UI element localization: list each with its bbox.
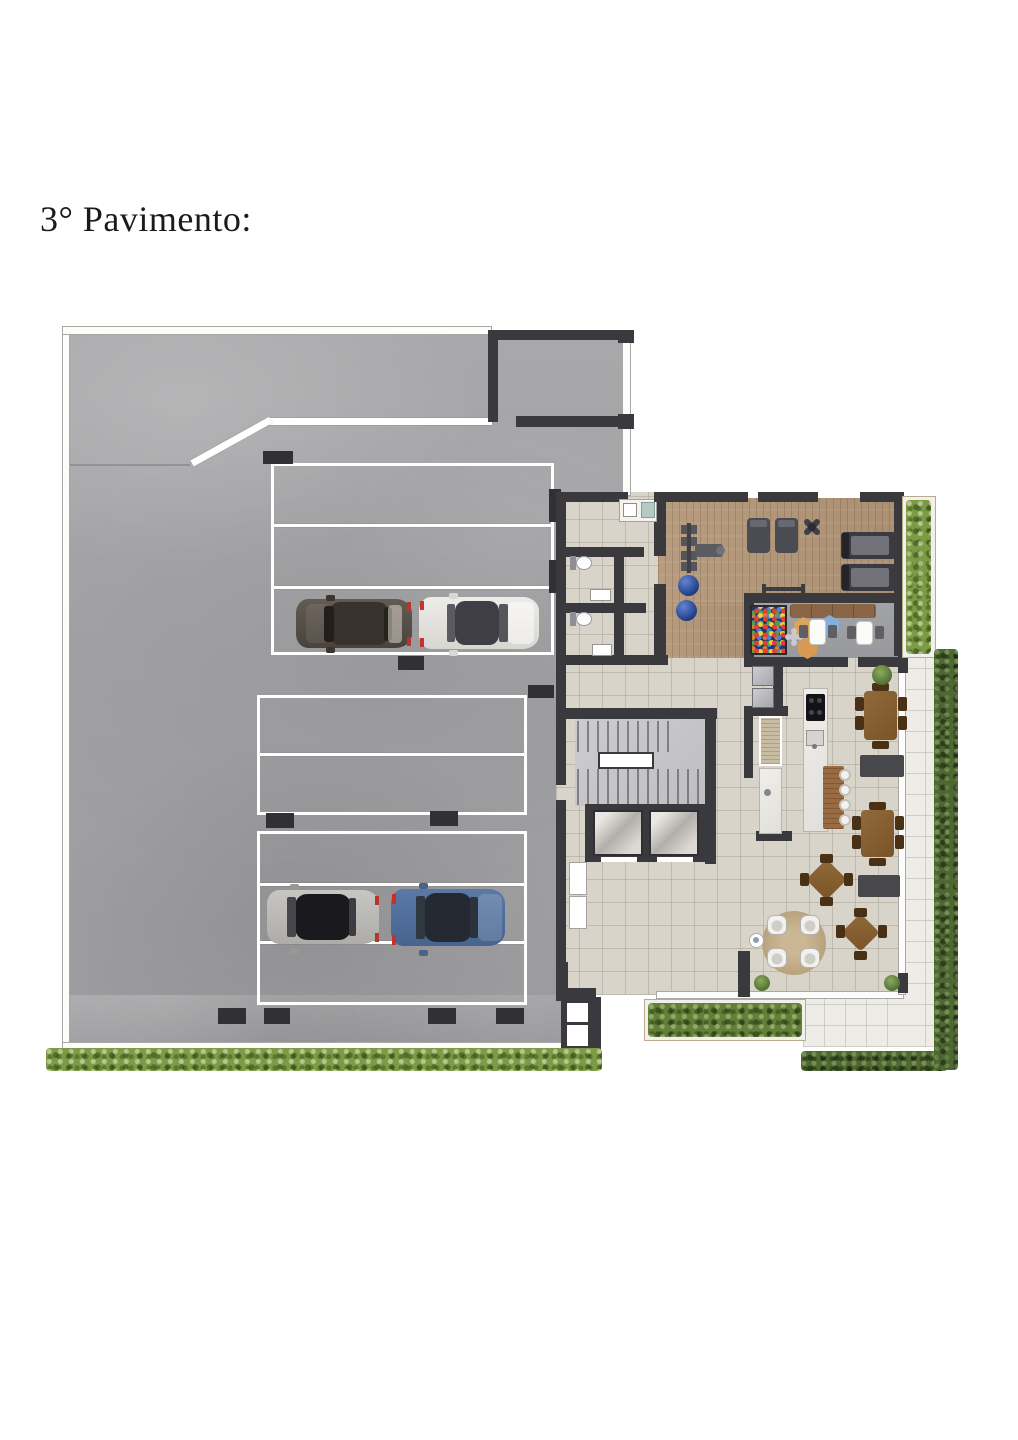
gym-ball <box>676 600 697 621</box>
car-blue-windshield <box>416 896 425 939</box>
elevator-door <box>657 857 693 862</box>
ballet-bar-cap <box>762 584 766 594</box>
island-faucet <box>812 744 817 749</box>
outer-wall-left <box>62 326 70 1049</box>
dining-chair <box>855 697 864 711</box>
hedge-top <box>906 500 931 654</box>
dining-chair <box>869 802 886 810</box>
service-door <box>569 862 587 895</box>
pillar <box>263 451 293 464</box>
car-silver-roof <box>295 894 351 940</box>
treadmill-console <box>842 565 849 590</box>
outer-wall-right-upper <box>622 330 631 496</box>
counter-faucet <box>764 789 771 796</box>
dining-chair <box>844 873 853 886</box>
pillar <box>496 1008 524 1024</box>
dining-chair <box>895 816 904 830</box>
car-suv-trim <box>388 605 402 643</box>
armchair <box>767 915 787 935</box>
parking-divider-c1 <box>260 883 524 886</box>
kids-chair <box>799 625 808 638</box>
dining-chair <box>836 925 845 938</box>
burner <box>817 710 822 715</box>
gym-wall-top-2 <box>758 492 818 502</box>
kids-table <box>809 619 826 645</box>
shrub <box>884 975 900 991</box>
terrace-bottom <box>803 995 906 1047</box>
car-white-taillight <box>420 601 424 610</box>
car-white-mirror <box>449 593 458 599</box>
bar-stool <box>839 814 851 826</box>
car-white-rear-glass <box>447 604 455 642</box>
dining-chair <box>878 925 887 938</box>
kids-chair <box>875 626 884 639</box>
bath-wall-1 <box>566 547 644 557</box>
treadmill-console <box>842 533 849 558</box>
weight-plate <box>691 562 697 571</box>
hedge-bottom-left <box>648 1003 802 1037</box>
dining-chair <box>898 716 907 730</box>
exit-opening <box>567 1025 588 1046</box>
dining-table <box>864 691 897 740</box>
cabinet <box>752 688 774 708</box>
core-wall-left-lower <box>556 800 566 962</box>
kids-chair <box>847 626 856 639</box>
buffet <box>860 755 904 777</box>
car-blue-mirror <box>419 883 428 889</box>
car-white-mirror <box>449 650 458 656</box>
mat-pad <box>750 520 767 527</box>
ballet-bar <box>763 587 805 591</box>
gym-wall-top-1 <box>654 492 748 502</box>
dining-chair <box>872 741 889 749</box>
car-silver-windshield <box>287 897 296 937</box>
car-silver-taillight <box>375 896 379 905</box>
dining-chair <box>852 835 861 849</box>
dining-table <box>861 810 894 857</box>
car-suv-taillight <box>407 637 411 646</box>
ball-pit <box>750 605 787 655</box>
bath-sink <box>592 644 612 656</box>
burner <box>809 698 814 703</box>
weight-plate <box>681 525 687 534</box>
kids-table <box>856 621 873 645</box>
play-sofa <box>790 604 876 618</box>
ramp-room-wall-top <box>488 330 628 340</box>
flower-rug <box>790 633 798 641</box>
weight-plate <box>681 562 687 571</box>
car-blue-taillight <box>392 935 396 945</box>
dining-chair <box>820 897 833 906</box>
decanter <box>753 937 759 943</box>
bar-stool <box>839 769 851 781</box>
hedge-garage-bottom <box>46 1048 602 1071</box>
support-sink <box>623 503 637 517</box>
sideboard <box>759 716 782 766</box>
pillar <box>398 656 424 670</box>
car-suv-windshield <box>324 606 334 642</box>
ramp-room-wall-left <box>488 330 498 422</box>
service-door <box>569 896 587 929</box>
ramp-room-corner-a <box>618 330 634 343</box>
gym-ball <box>678 575 699 596</box>
hedge-terrace-right <box>934 649 958 1070</box>
stair-treads-upper <box>577 721 677 752</box>
car-suv-mirror <box>326 595 335 601</box>
car-silver-mirror <box>290 948 299 954</box>
shrub <box>754 975 770 991</box>
bath-partition-1 <box>614 557 624 605</box>
car-suv-taillight <box>407 602 411 611</box>
elevator-cab <box>593 810 643 856</box>
core-wall-top <box>556 492 628 502</box>
parking-divider-a1 <box>274 524 551 527</box>
car-blue-mirror <box>419 950 428 956</box>
burner <box>817 698 822 703</box>
toilet-bowl <box>576 612 592 626</box>
kids-chair <box>828 625 837 638</box>
car-silver-rear-glass <box>349 898 356 936</box>
parking-divider-b1 <box>260 753 524 756</box>
potted-plant <box>872 665 892 685</box>
bar-stool <box>839 784 851 796</box>
pillar <box>528 685 554 698</box>
dining-chair <box>852 816 861 830</box>
bath-wall-2 <box>566 603 646 613</box>
stair-wall-top <box>565 708 717 719</box>
corridor-wall-stub <box>738 951 750 997</box>
car-suv-roof <box>330 602 388 645</box>
armchair <box>800 948 820 968</box>
car-blue-hood <box>478 894 502 941</box>
burner <box>809 710 814 715</box>
elevator-door <box>601 857 637 862</box>
car-suv-mirror <box>326 647 335 653</box>
lounge-wall-bottom <box>656 991 904 999</box>
gym-wall-left-lower <box>654 584 666 664</box>
dining-chair <box>854 908 867 917</box>
car-white-roof <box>455 601 499 645</box>
car-white-hood <box>508 602 534 644</box>
ballet-bar-cap <box>801 584 805 594</box>
buffet <box>858 875 900 897</box>
bench-pad <box>716 546 725 555</box>
weight-plate <box>681 537 687 546</box>
stair-landing <box>598 752 654 769</box>
floor-plan <box>0 0 1018 1440</box>
bar-stool <box>839 799 851 811</box>
dining-chair <box>869 858 886 866</box>
hedge-terrace-bottom <box>801 1051 948 1071</box>
treadmill-deck <box>851 568 889 587</box>
gym-kids-wall <box>748 593 904 603</box>
dining-chair <box>898 697 907 711</box>
ramp-room-wall-bottom <box>516 416 628 427</box>
car-blue-rear-glass <box>470 897 478 938</box>
dining-chair <box>854 951 867 960</box>
dining-chair <box>820 854 833 863</box>
parking-divider-a2 <box>274 586 551 589</box>
elevator-cab <box>649 810 699 856</box>
wet-counter <box>759 768 782 834</box>
ramp-line-horizontal <box>268 418 492 425</box>
ramp-room-corner-b <box>618 414 634 429</box>
dining-chair <box>855 716 864 730</box>
stair-treads-lower <box>577 769 705 805</box>
car-blue-roof <box>424 893 472 942</box>
car-silver-mirror <box>290 884 299 890</box>
pillar <box>430 811 458 826</box>
core-wall-left-upper <box>556 492 566 667</box>
exit-opening <box>567 1003 588 1022</box>
armchair <box>800 915 820 935</box>
bath-wall-3 <box>566 655 668 665</box>
car-white-taillight <box>420 638 424 647</box>
car-silver-taillight <box>375 933 379 942</box>
dining-chair <box>800 873 809 886</box>
dining-chair <box>895 835 904 849</box>
bath-sink <box>590 589 611 601</box>
pillar <box>428 1008 456 1024</box>
armchair <box>767 948 787 968</box>
weight-plate <box>681 551 687 560</box>
car-blue-taillight <box>392 894 396 904</box>
support-counter-item <box>641 502 655 518</box>
floor-joint-line <box>70 464 190 466</box>
core-wall-left-mid <box>556 665 566 785</box>
mat-pad <box>778 520 795 527</box>
nook-wall-left <box>744 706 753 778</box>
weight-plate <box>691 525 697 534</box>
bath-partition-2 <box>614 613 624 657</box>
toilet-bowl <box>576 556 592 570</box>
outer-wall-top <box>62 326 492 335</box>
cabinet <box>752 666 774 686</box>
fridge-wall <box>773 660 783 712</box>
pillar <box>266 813 294 828</box>
treadmill-deck <box>851 536 889 555</box>
pillar <box>218 1008 246 1024</box>
car-white-windshield <box>499 604 508 642</box>
fan-hub <box>808 523 816 531</box>
pillar <box>264 1008 290 1024</box>
gym-floor-left <box>658 602 748 658</box>
